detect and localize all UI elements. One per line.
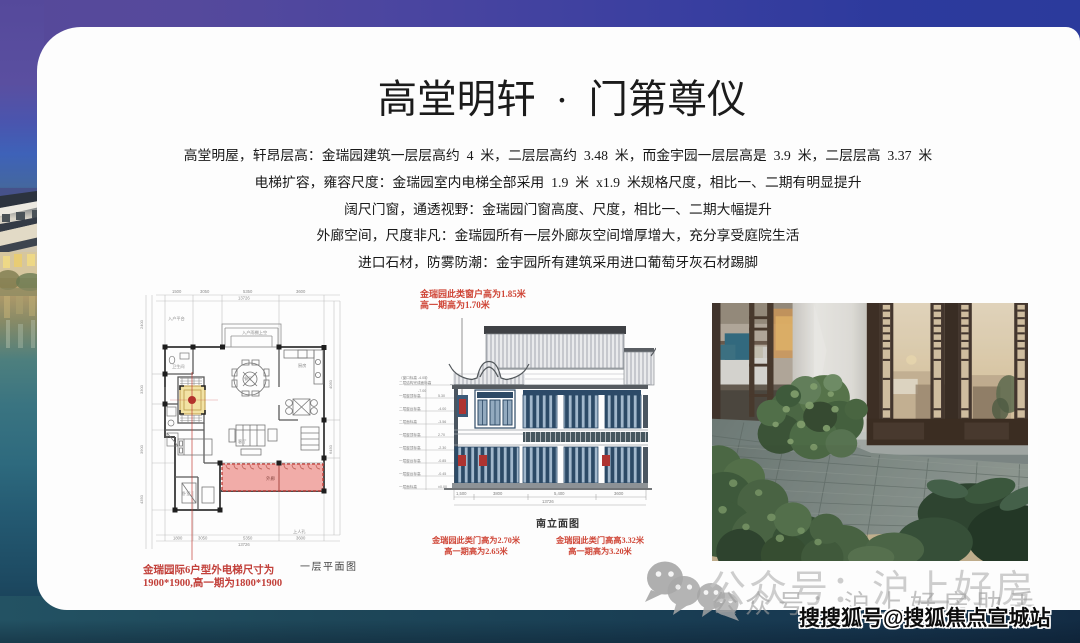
svg-text:4050: 4050	[328, 379, 333, 389]
svg-text:3600: 3600	[296, 536, 306, 541]
svg-text:卧室: 卧室	[182, 490, 190, 497]
svg-text:一层窗台标高: 一层窗台标高	[399, 471, 421, 476]
svg-text:5,400: 5,400	[554, 491, 565, 496]
svg-text:13726: 13726	[238, 296, 250, 301]
svg-text:5350: 5350	[243, 289, 253, 294]
svg-text:外廊: 外廊	[266, 475, 275, 482]
svg-text:1,500: 1,500	[456, 491, 467, 496]
svg-text:4350: 4350	[139, 494, 144, 504]
svg-text:3900: 3900	[139, 444, 144, 454]
svg-text:一层窗顶标高: 一层窗顶标高	[399, 393, 421, 398]
svg-text:-7.00: -7.00	[418, 389, 426, 393]
svg-text:-4.00: -4.00	[438, 407, 446, 411]
svg-text:-2.30: -2.30	[438, 446, 446, 450]
svg-text:客厅: 客厅	[238, 438, 246, 445]
svg-text:一层面标高: 一层面标高	[399, 484, 417, 489]
svg-text:13726: 13726	[542, 499, 554, 504]
svg-text:二层结构完成面标高: 二层结构完成面标高	[399, 380, 432, 385]
svg-text:餐厅: 餐厅	[244, 375, 252, 382]
svg-text:3050: 3050	[200, 289, 210, 294]
svg-text:上人孔: 上人孔	[293, 528, 306, 535]
svg-text:一层窗顶标高: 一层窗顶标高	[399, 445, 421, 450]
svg-text:二层面标高: 二层面标高	[399, 419, 417, 424]
svg-text:一层窗顶标高: 一层窗顶标高	[399, 432, 421, 437]
svg-text:1500: 1500	[172, 289, 182, 294]
svg-text:-3.56: -3.56	[438, 420, 446, 424]
svg-text:入户平台: 入户平台	[168, 315, 185, 322]
svg-text:厨房: 厨房	[298, 362, 306, 369]
svg-text:-0.85: -0.85	[438, 459, 446, 463]
svg-text:3800: 3800	[493, 491, 503, 496]
svg-text:3600: 3600	[296, 289, 306, 294]
svg-text:3050: 3050	[198, 536, 208, 541]
svg-text:二层窗台标高: 二层窗台标高	[399, 406, 421, 411]
svg-text:-0.45: -0.45	[438, 472, 446, 476]
svg-text:卫生间: 卫生间	[172, 363, 185, 370]
svg-text:一层窗台标高: 一层窗台标高	[399, 458, 421, 463]
svg-text:3300: 3300	[139, 384, 144, 394]
svg-text:6450: 6450	[328, 444, 333, 454]
svg-text:13726: 13726	[238, 542, 250, 547]
svg-text:（窗口标高 -4.05）: （窗口标高 -4.05）	[399, 375, 430, 380]
svg-text:1800: 1800	[173, 536, 183, 541]
svg-text:3600: 3600	[614, 491, 624, 496]
svg-text:5.30: 5.30	[438, 394, 445, 398]
svg-text:2.70: 2.70	[438, 433, 445, 437]
svg-text:2400: 2400	[139, 319, 144, 329]
svg-text:5350: 5350	[243, 536, 253, 541]
svg-text:入户雨棚上空: 入户雨棚上空	[242, 329, 267, 336]
